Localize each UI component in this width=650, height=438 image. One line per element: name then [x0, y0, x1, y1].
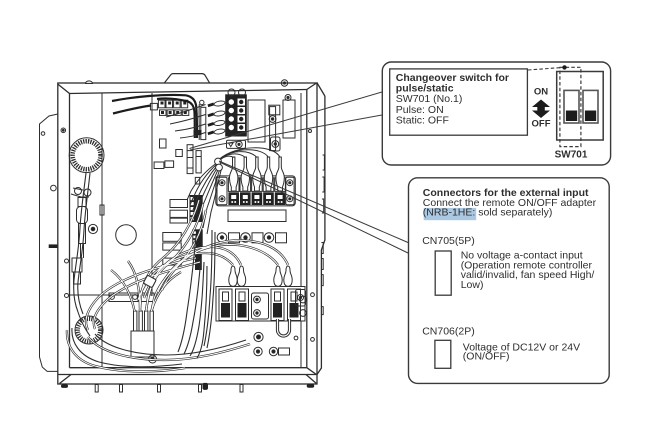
- svg-text:CN705(5P): CN705(5P): [422, 235, 475, 247]
- svg-text:CN706(2P): CN706(2P): [422, 326, 475, 338]
- svg-text:ON: ON: [534, 87, 548, 98]
- svg-text:OFF: OFF: [532, 119, 551, 130]
- svg-text:Low): Low): [461, 279, 484, 291]
- svg-text:(NRB-1HE: sold separately): (NRB-1HE: sold separately): [423, 207, 553, 219]
- svg-text:Static: OFF: Static: OFF: [396, 114, 449, 126]
- svg-text:SW701: SW701: [555, 150, 588, 161]
- svg-text:(ON/OFF): (ON/OFF): [463, 351, 510, 363]
